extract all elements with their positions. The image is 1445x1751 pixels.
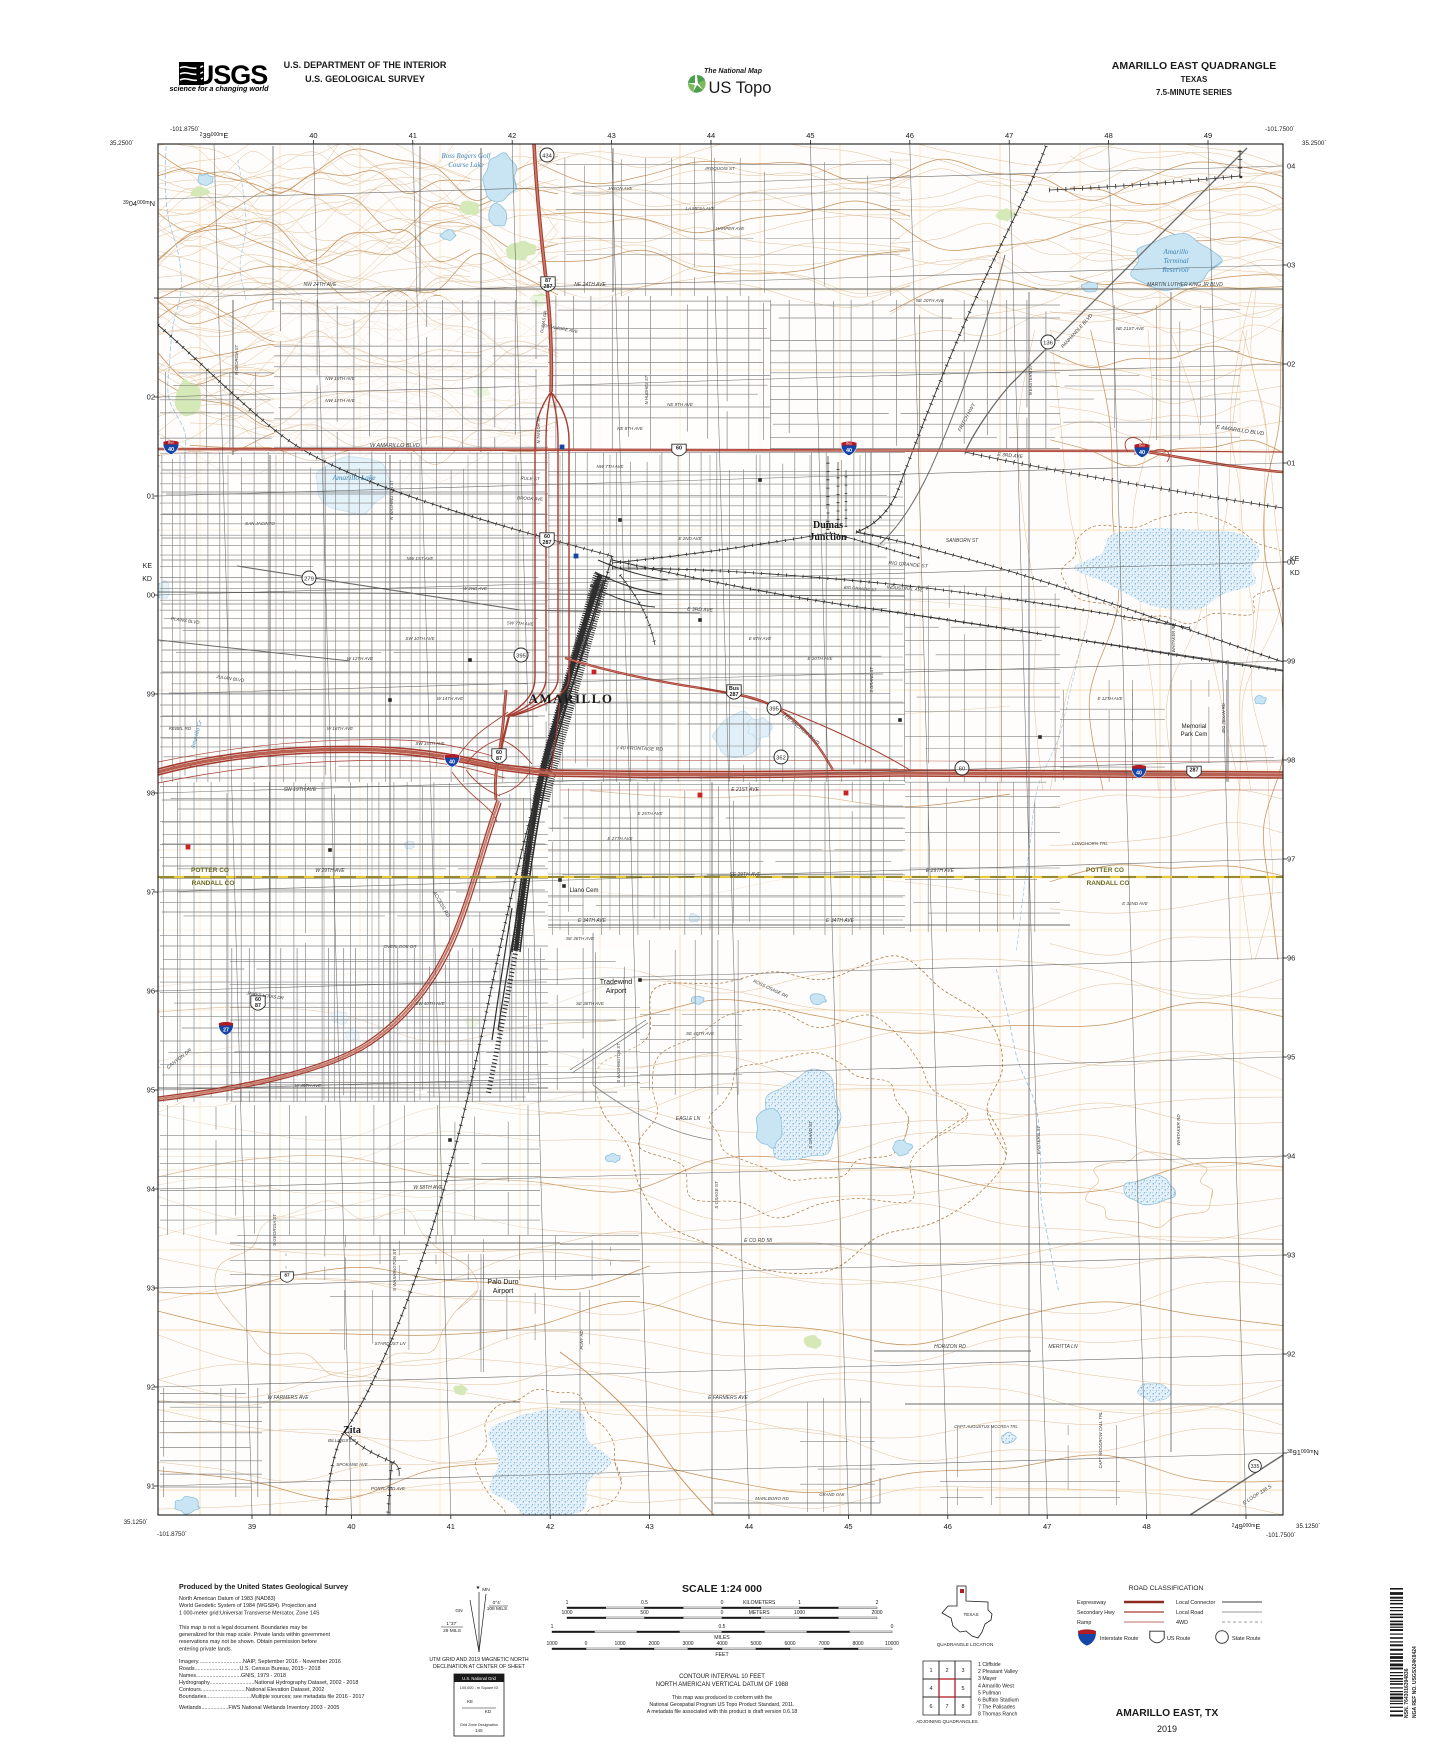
svg-text:0.5: 0.5 — [641, 1600, 648, 1606]
svg-text:Contours......................: Contours..............................Na… — [179, 1687, 324, 1693]
svg-text:1000: 1000 — [614, 1641, 625, 1647]
svg-text:LA MESA AVE: LA MESA AVE — [685, 206, 715, 211]
svg-text:35.1250´: 35.1250´ — [124, 1519, 148, 1526]
svg-text:AMARILLO EAST, TX: AMARILLO EAST, TX — [1116, 1708, 1219, 1719]
svg-text:136: 136 — [1043, 340, 1053, 346]
svg-text:91: 91 — [147, 1482, 155, 1491]
svg-text:E 8TH AVE: E 8TH AVE — [749, 636, 773, 641]
svg-text:4000: 4000 — [716, 1641, 727, 1647]
svg-text:Airport: Airport — [493, 1288, 514, 1295]
svg-text:43: 43 — [645, 1522, 653, 1531]
svg-text:8 Thomas Ranch: 8 Thomas Ranch — [978, 1712, 1018, 1718]
svg-text:National Geospatial Program US: National Geospatial Program US Topo Prod… — [649, 1702, 794, 1708]
svg-text:1000: 1000 — [561, 1610, 572, 1616]
svg-text:World Geodetic System of 1984: World Geodetic System of 1984 (WGS84). P… — [179, 1603, 316, 1609]
svg-text:E FARMERS AVE: E FARMERS AVE — [708, 1395, 748, 1401]
svg-text:Interstate Route: Interstate Route — [1100, 1636, 1138, 1642]
svg-text:KD: KD — [142, 576, 152, 583]
svg-text:NSN. 7643016394836: NSN. 7643016394836 — [1404, 1668, 1410, 1718]
svg-text:CAPT AUGUSTUS MCCREA TRL: CAPT AUGUSTUS MCCREA TRL — [954, 1424, 1018, 1429]
svg-text:GN: GN — [455, 1608, 463, 1614]
svg-text:MARLBORO RD: MARLBORO RD — [755, 1496, 789, 1501]
svg-text:40: 40 — [309, 131, 317, 140]
svg-text:E 12TH AVE: E 12TH AVE — [1097, 696, 1123, 701]
svg-text:E CO RD 58: E CO RD 58 — [744, 1238, 772, 1244]
svg-text:E 27TH AVE: E 27TH AVE — [607, 836, 633, 841]
svg-text:NE 9TH AVE: NE 9TH AVE — [667, 402, 694, 407]
svg-text:434: 434 — [542, 153, 552, 159]
svg-text:generalized for this map scale: generalized for this map scale. Private … — [179, 1632, 331, 1638]
svg-text:POTTER CO: POTTER CO — [1086, 867, 1124, 874]
svg-text:Roads.........................: Roads..............................U.S. … — [179, 1666, 320, 1672]
svg-text:Memorial: Memorial — [1182, 724, 1207, 730]
svg-text:US Topo: US Topo — [709, 79, 772, 97]
svg-text:A metadata file associated wit: A metadata file associated with this pro… — [647, 1709, 798, 1715]
svg-text:01: 01 — [147, 492, 155, 501]
svg-text:1: 1 — [551, 1624, 554, 1630]
svg-text:MERITTA LN: MERITTA LN — [1048, 1344, 1078, 1350]
svg-text:45: 45 — [844, 1522, 852, 1531]
svg-text:287: 287 — [730, 692, 739, 698]
svg-text:1°37´: 1°37´ — [446, 1621, 458, 1627]
svg-text:NE 21ST AVE: NE 21ST AVE — [1116, 326, 1145, 331]
svg-text:SW 19TH AVE: SW 19TH AVE — [284, 787, 317, 793]
svg-text:92: 92 — [147, 1383, 155, 1392]
svg-text:Terminal: Terminal — [1163, 257, 1188, 265]
svg-text:287: 287 — [1190, 768, 1199, 774]
svg-text:98: 98 — [1287, 756, 1295, 765]
svg-text:6000: 6000 — [784, 1641, 795, 1647]
svg-text:Wetlands..................FWS: Wetlands..................FWS National W… — [179, 1705, 339, 1711]
svg-text:S WASHINGTON ST: S WASHINGTON ST — [392, 1248, 397, 1291]
svg-text:SANBORN ST: SANBORN ST — [946, 538, 979, 544]
svg-text:KE: KE — [467, 1699, 473, 1704]
svg-text:REBEL RD: REBEL RD — [169, 726, 192, 731]
svg-text:RANDALL CO: RANDALL CO — [1087, 880, 1130, 887]
svg-text:48: 48 — [1142, 1522, 1150, 1531]
svg-text:SE 38TH AVE: SE 38TH AVE — [576, 1001, 605, 1006]
svg-text:42: 42 — [546, 1522, 554, 1531]
svg-text:95: 95 — [1287, 1053, 1295, 1062]
svg-text:7.5-MINUTE SERIES: 7.5-MINUTE SERIES — [1156, 88, 1233, 97]
svg-text:S OSAGE ST: S OSAGE ST — [714, 1180, 719, 1209]
svg-text:This map was produced to confo: This map was produced to conform with th… — [672, 1695, 772, 1701]
svg-text:Bus: Bus — [846, 442, 852, 446]
svg-text:1 Cliffside: 1 Cliffside — [978, 1662, 1001, 1668]
svg-text:JASON AVE: JASON AVE — [607, 186, 634, 191]
svg-text:UTM GRID AND 2019 MAGNETIC NOR: UTM GRID AND 2019 MAGNETIC NORTH — [429, 1657, 529, 1663]
svg-text:E 34TH AVE: E 34TH AVE — [578, 918, 607, 924]
svg-text:S GRAND ST: S GRAND ST — [869, 667, 874, 693]
svg-text:entering private lands.: entering private lands. — [179, 1646, 232, 1652]
svg-text:93: 93 — [147, 1284, 155, 1293]
svg-text:Palo Duro: Palo Duro — [487, 1279, 518, 1286]
svg-text:OVERLOOK DR: OVERLOOK DR — [383, 944, 417, 949]
svg-text:E 10TH AVE: E 10TH AVE — [807, 656, 833, 661]
svg-text:PONY RD: PONY RD — [579, 1330, 584, 1349]
svg-text:E 25TH AVE: E 25TH AVE — [637, 811, 663, 816]
svg-text:1 000-meter grid:Universal Tra: 1 000-meter grid:Universal Transverse Me… — [179, 1610, 320, 1616]
svg-text:WHITAKER RD: WHITAKER RD — [1176, 1114, 1181, 1146]
svg-text:SW 10TH AVE: SW 10TH AVE — [405, 636, 435, 641]
svg-text:Ramp: Ramp — [1077, 1620, 1091, 1626]
svg-text:03: 03 — [1287, 261, 1295, 270]
svg-text:7 The Palisades: 7 The Palisades — [978, 1705, 1016, 1711]
svg-text:E 32ND AVE: E 32ND AVE — [1122, 901, 1149, 906]
svg-text:49: 49 — [1204, 131, 1212, 140]
svg-text:94: 94 — [1287, 1152, 1295, 1161]
svg-text:1000: 1000 — [794, 1610, 805, 1616]
svg-text:96: 96 — [147, 987, 155, 996]
svg-text:Airport: Airport — [606, 988, 627, 995]
svg-text:W 29TH AVE: W 29TH AVE — [315, 868, 345, 874]
svg-text:97: 97 — [1287, 855, 1295, 864]
svg-text:3 Mayer: 3 Mayer — [978, 1676, 997, 1682]
svg-text:Tradewind: Tradewind — [600, 979, 633, 986]
svg-text:10000: 10000 — [885, 1641, 899, 1647]
svg-text:QUADRANGLE LOCATION: QUADRANGLE LOCATION — [937, 1642, 994, 1647]
svg-text:NGA REF NO. USGSX24K8424: NGA REF NO. USGSX24K8424 — [1412, 1646, 1418, 1718]
svg-text:STARDUST LN: STARDUST LN — [375, 1341, 407, 1346]
svg-text:SW 40TH AVE: SW 40TH AVE — [415, 1001, 445, 1006]
svg-text:NW 24TH AVE: NW 24TH AVE — [304, 282, 338, 288]
svg-text:40: 40 — [449, 760, 455, 766]
svg-text:Grid Zone Designation: Grid Zone Designation — [460, 1723, 498, 1727]
svg-text:-101.7500´: -101.7500´ — [1265, 126, 1295, 133]
svg-text:99: 99 — [147, 690, 155, 699]
svg-text:W AMARILLO BLVD: W AMARILLO BLVD — [370, 443, 420, 449]
svg-text:U.S. DEPARTMENT OF THE INTERIO: U.S. DEPARTMENT OF THE INTERIOR — [284, 60, 447, 70]
svg-text:5000: 5000 — [750, 1641, 761, 1647]
svg-text:Names.........................: Names..............................GNIS,… — [179, 1673, 286, 1679]
svg-text:44: 44 — [745, 1522, 753, 1531]
svg-text:Boundaries....................: Boundaries..............................… — [179, 1694, 365, 1700]
svg-text:47: 47 — [1005, 131, 1013, 140]
svg-text:The National Map: The National Map — [704, 68, 763, 75]
svg-text:3: 3 — [961, 1668, 964, 1674]
svg-text:AMARILLO EAST QUADRANGLE: AMARILLO EAST QUADRANGLE — [1112, 60, 1277, 72]
svg-text:Amarillo Lake: Amarillo Lake — [331, 473, 376, 482]
svg-text:-101.8750´: -101.8750´ — [157, 1531, 187, 1538]
svg-text:287: 287 — [543, 540, 552, 546]
svg-text:48: 48 — [1104, 131, 1112, 140]
svg-text:SW 15TH AVE: SW 15TH AVE — [415, 741, 445, 746]
svg-text:BILLINGS DR: BILLINGS DR — [328, 1438, 357, 1443]
svg-text:Amarillo: Amarillo — [1163, 248, 1189, 256]
svg-text:96: 96 — [1287, 954, 1295, 963]
svg-text:SCALE 1:24 000: SCALE 1:24 000 — [682, 1583, 762, 1595]
svg-text:100,000 - m Square ID: 100,000 - m Square ID — [460, 1686, 499, 1690]
svg-text:KD: KD — [1290, 570, 1300, 577]
svg-text:TEXAS: TEXAS — [963, 1612, 978, 1617]
svg-text:science for a changing world: science for a changing world — [169, 84, 269, 93]
svg-text:US Route: US Route — [1167, 1636, 1190, 1642]
svg-text:2: 2 — [945, 1668, 948, 1674]
svg-text:S GEORGIA ST: S GEORGIA ST — [272, 1213, 277, 1246]
svg-text:3000: 3000 — [682, 1641, 693, 1647]
svg-text:CONTOUR INTERVAL 10 FEET: CONTOUR INTERVAL 10 FEET — [679, 1674, 765, 1680]
svg-text:METERS: METERS — [749, 1610, 771, 1616]
svg-text:IROQUOIS ST: IROQUOIS ST — [705, 166, 736, 171]
svg-text:92: 92 — [1287, 1350, 1295, 1359]
svg-text:4WD: 4WD — [1176, 1620, 1188, 1626]
svg-text:362: 362 — [776, 755, 786, 761]
svg-text:HORIZON RD: HORIZON RD — [934, 1344, 966, 1350]
svg-text:Expressway: Expressway — [1077, 1600, 1106, 1606]
svg-text:395: 395 — [769, 706, 779, 712]
svg-text:46: 46 — [944, 1522, 952, 1531]
svg-text:Bus: Bus — [168, 441, 174, 445]
svg-text:TEXAS: TEXAS — [1181, 75, 1208, 84]
svg-text:93: 93 — [1287, 1251, 1295, 1260]
svg-text:45: 45 — [806, 131, 814, 140]
svg-text:MN: MN — [482, 1587, 490, 1593]
svg-text:W 14TH AVE: W 14TH AVE — [437, 696, 464, 701]
svg-text:N EASTERN ST: N EASTERN ST — [1028, 364, 1033, 395]
svg-text:RANDALL CO: RANDALL CO — [192, 880, 235, 887]
svg-text:335: 335 — [1251, 1464, 1260, 1470]
svg-text:108 MILS: 108 MILS — [487, 1606, 508, 1612]
svg-text:42: 42 — [508, 131, 516, 140]
svg-text:0: 0 — [585, 1641, 588, 1647]
svg-text:Zita: Zita — [343, 1425, 361, 1436]
svg-text:N GEORGIA ST: N GEORGIA ST — [234, 345, 239, 376]
svg-text:98: 98 — [147, 789, 155, 798]
svg-text:★: ★ — [476, 1585, 481, 1591]
svg-text:Bus: Bus — [1139, 444, 1145, 448]
svg-text:Junction: Junction — [809, 532, 847, 543]
svg-text:N WASHINGTON ST: N WASHINGTON ST — [389, 480, 394, 520]
svg-text:E 34TH AVE: E 34TH AVE — [826, 918, 855, 924]
svg-text:Course Lake: Course Lake — [448, 161, 484, 169]
svg-text:40: 40 — [846, 448, 852, 454]
svg-text:04: 04 — [1287, 162, 1295, 171]
svg-text:Reservoir: Reservoir — [1161, 266, 1189, 274]
svg-text:PORTLAND AVE: PORTLAND AVE — [371, 1486, 406, 1491]
svg-text:0°4´: 0°4´ — [493, 1600, 502, 1606]
svg-text:7: 7 — [945, 1704, 948, 1710]
svg-text:02: 02 — [1287, 360, 1295, 369]
svg-text:27: 27 — [223, 1028, 229, 1034]
svg-text:40: 40 — [1139, 450, 1145, 456]
svg-text:5: 5 — [961, 1686, 964, 1692]
svg-text:ADJOINING QUADRANGLES: ADJOINING QUADRANGLES — [916, 1719, 978, 1724]
svg-text:35.1250´: 35.1250´ — [1296, 1523, 1320, 1530]
svg-text:43: 43 — [607, 131, 615, 140]
svg-text:2000: 2000 — [871, 1610, 882, 1616]
svg-text:W 58TH AVE: W 58TH AVE — [413, 1185, 443, 1191]
svg-text:01: 01 — [1287, 459, 1295, 468]
svg-text:N HUGHES ST: N HUGHES ST — [644, 375, 649, 404]
svg-text:60: 60 — [676, 446, 682, 452]
svg-text:-101.8750´: -101.8750´ — [170, 126, 200, 133]
svg-text:Ross Rogers Golf: Ross Rogers Golf — [441, 152, 492, 160]
svg-text:POTTER CO: POTTER CO — [191, 867, 229, 874]
svg-text:Local Connector: Local Connector — [1176, 1600, 1215, 1606]
svg-text:S WHITAKER RD: S WHITAKER RD — [1171, 624, 1176, 657]
svg-text:40: 40 — [168, 447, 174, 453]
svg-text:0: 0 — [721, 1610, 724, 1616]
svg-text:NW 15TH AVE: NW 15TH AVE — [325, 376, 356, 381]
svg-text:U.S. GEOLOGICAL SURVEY: U.S. GEOLOGICAL SURVEY — [305, 74, 425, 84]
svg-text:279: 279 — [304, 576, 314, 582]
svg-text:Imagery.......................: Imagery..............................NAI… — [179, 1659, 341, 1665]
svg-text:8000: 8000 — [852, 1641, 863, 1647]
svg-text:EAGLE LN: EAGLE LN — [676, 1116, 701, 1122]
svg-text:Park Cem: Park Cem — [1181, 732, 1208, 738]
svg-text:W FARMERS AVE: W FARMERS AVE — [267, 1395, 309, 1401]
svg-text:Secondary Hwy: Secondary Hwy — [1077, 1610, 1115, 1616]
svg-text:SPOKANE AVE: SPOKANE AVE — [336, 1462, 369, 1467]
svg-text:CAPT WOODROW CALL TRL: CAPT WOODROW CALL TRL — [1098, 1411, 1103, 1468]
svg-text:North American Datum of 1983 (: North American Datum of 1983 (NAD83) — [179, 1596, 276, 1602]
svg-text:1: 1 — [798, 1600, 801, 1606]
svg-text:7000: 7000 — [818, 1641, 829, 1647]
svg-text:35.2500´: 35.2500´ — [1302, 140, 1326, 147]
svg-text:E 21ST AVE: E 21ST AVE — [731, 787, 759, 793]
svg-text:14S: 14S — [475, 1728, 483, 1733]
svg-text:SAN JACINTO: SAN JACINTO — [245, 521, 275, 526]
svg-text:287: 287 — [544, 284, 553, 290]
svg-text:02: 02 — [147, 393, 155, 402]
svg-text:ROAD CLASSIFICATION: ROAD CLASSIFICATION — [1129, 1585, 1204, 1592]
svg-text:KD: KD — [485, 1709, 492, 1714]
svg-text:2: 2 — [876, 1600, 879, 1606]
svg-text:0: 0 — [721, 1600, 724, 1606]
svg-text:reservations may not be shown.: reservations may not be shown. Obtain pe… — [179, 1639, 317, 1645]
svg-text:Dumas: Dumas — [813, 520, 843, 531]
svg-text:4 Amarillo West: 4 Amarillo West — [978, 1683, 1014, 1689]
svg-text:39: 39 — [248, 1522, 256, 1531]
svg-text:LONGHORN TRL: LONGHORN TRL — [1072, 841, 1108, 846]
svg-text:46: 46 — [906, 131, 914, 140]
svg-text:0: 0 — [891, 1624, 894, 1630]
svg-text:NE 20TH AVE: NE 20TH AVE — [916, 298, 945, 303]
svg-text:40: 40 — [1136, 771, 1142, 777]
svg-text:1: 1 — [566, 1600, 569, 1606]
svg-text:Llano Cem: Llano Cem — [569, 888, 598, 894]
svg-text:5 Pullman: 5 Pullman — [978, 1690, 1001, 1696]
svg-text:97: 97 — [147, 888, 155, 897]
svg-text:SE 40TH AVE: SE 40TH AVE — [686, 1031, 715, 1036]
svg-text:87: 87 — [284, 1273, 290, 1279]
svg-text:This map is not a legal docume: This map is not a legal document. Bounda… — [179, 1625, 308, 1631]
svg-text:W 2ND AVE: W 2ND AVE — [463, 586, 488, 591]
svg-text:29 MILS: 29 MILS — [443, 1628, 461, 1634]
svg-text:KILOMETERS: KILOMETERS — [743, 1600, 776, 1606]
svg-text:KE: KE — [1290, 556, 1300, 563]
svg-text:94: 94 — [147, 1185, 155, 1194]
svg-text:1000: 1000 — [546, 1641, 557, 1647]
svg-text:GRAND OAK: GRAND OAK — [819, 1492, 844, 1497]
svg-text:2000: 2000 — [648, 1641, 659, 1647]
svg-text:00: 00 — [147, 591, 155, 600]
svg-text:Produced by the United States: Produced by the United States Geological… — [179, 1582, 348, 1591]
svg-text:DECLINATION AT CENTER OF SHEET: DECLINATION AT CENTER OF SHEET — [433, 1664, 526, 1670]
svg-text:6: 6 — [929, 1704, 932, 1710]
svg-text:500: 500 — [640, 1610, 649, 1616]
svg-text:SE 36TH AVE: SE 36TH AVE — [566, 936, 595, 941]
svg-text:FEET: FEET — [715, 1652, 729, 1658]
svg-text:NW 12TH AVE: NW 12TH AVE — [325, 398, 356, 403]
svg-text:41: 41 — [447, 1522, 455, 1531]
svg-text:Local Road: Local Road — [1176, 1610, 1203, 1616]
svg-text:AMARILLO: AMARILLO — [529, 691, 614, 706]
svg-text:S GRAND ST: S GRAND ST — [808, 1120, 813, 1149]
svg-text:44: 44 — [707, 131, 715, 140]
svg-text:99: 99 — [1287, 657, 1295, 666]
svg-text:NW 1ST AVE: NW 1ST AVE — [407, 556, 435, 561]
svg-text:47: 47 — [1043, 1522, 1051, 1531]
svg-text:E 2ND AVE: E 2ND AVE — [678, 536, 702, 541]
svg-text:Hydrography...................: Hydrography.............................… — [179, 1680, 358, 1686]
svg-text:W 12TH AVE: W 12TH AVE — [347, 656, 374, 661]
svg-text:1: 1 — [929, 1668, 932, 1674]
svg-text:NE 8TH AVE: NE 8TH AVE — [617, 426, 644, 431]
svg-text:U.S. National Grid: U.S. National Grid — [462, 1676, 496, 1681]
svg-text:87: 87 — [496, 756, 502, 762]
svg-text:95: 95 — [147, 1086, 155, 1095]
svg-text:40: 40 — [347, 1522, 355, 1531]
svg-text:HARPER AVE: HARPER AVE — [716, 226, 746, 231]
svg-text:-101.7500´: -101.7500´ — [1266, 1532, 1296, 1539]
svg-text:6 Buffalo Stadium: 6 Buffalo Stadium — [978, 1698, 1019, 1704]
svg-text:41: 41 — [409, 131, 417, 140]
svg-text:State Route: State Route — [1232, 1636, 1260, 1642]
svg-text:8: 8 — [961, 1704, 964, 1710]
svg-text:87: 87 — [255, 1003, 261, 1009]
svg-text:NORTH AMERICAN VERTICAL DATUM: NORTH AMERICAN VERTICAL DATUM OF 1988 — [656, 1682, 789, 1688]
svg-text:395: 395 — [516, 653, 526, 659]
svg-text:W 16TH AVE: W 16TH AVE — [327, 726, 354, 731]
svg-text:35.2500´: 35.2500´ — [110, 140, 134, 147]
svg-text:0.5: 0.5 — [719, 1624, 726, 1630]
svg-text:RULE ST: RULE ST — [520, 476, 540, 482]
svg-text:2 Pleasant Valley: 2 Pleasant Valley — [978, 1669, 1018, 1675]
svg-text:2019: 2019 — [1157, 1724, 1177, 1734]
svg-text:KE: KE — [143, 563, 153, 570]
svg-text:N TAYLOR ST: N TAYLOR ST — [536, 416, 541, 443]
svg-text:4: 4 — [929, 1686, 932, 1692]
